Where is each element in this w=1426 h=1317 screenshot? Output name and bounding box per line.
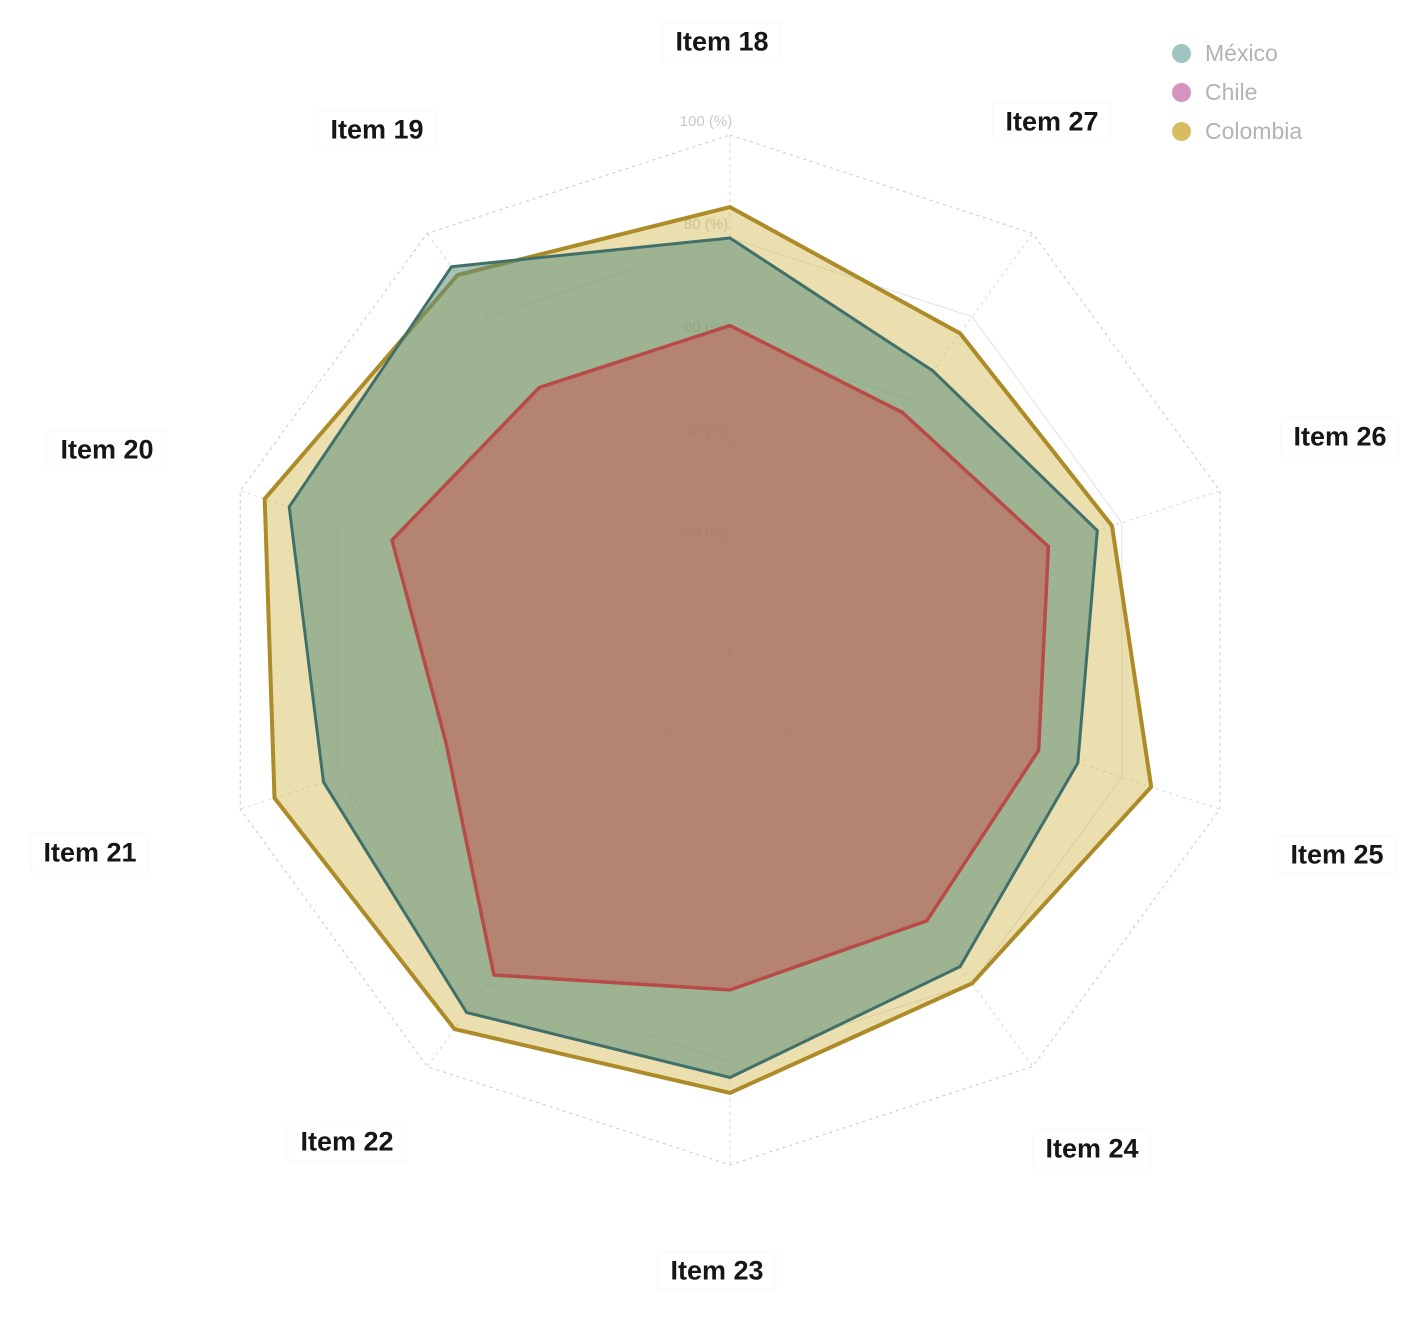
axis-label-item22: Item 22 [287, 1123, 406, 1162]
axis-label-item20: Item 20 [47, 431, 166, 470]
legend-item-mexico[interactable]: México [1172, 40, 1302, 67]
legend-swatch-mexico-icon [1172, 44, 1191, 63]
radial-tick-label: 100 (%) [680, 113, 733, 130]
legend-item-colombia[interactable]: Colombia [1172, 118, 1302, 145]
legend-label-chile: Chile [1205, 79, 1257, 106]
axis-label-item24: Item 24 [1032, 1130, 1151, 1169]
axis-label-item23: Item 23 [657, 1252, 776, 1291]
legend-swatch-chile-icon [1172, 83, 1191, 102]
radar-chart[interactable]: 20 (%)40 (%)60 (%)80 (%)100 (%) [0, 0, 1426, 1317]
legend-label-mexico: México [1205, 40, 1278, 67]
legend-swatch-colombia-icon [1172, 122, 1191, 141]
axis-label-item27: Item 27 [992, 103, 1111, 142]
axis-label-item19: Item 19 [317, 111, 436, 150]
axis-label-item18: Item 18 [662, 23, 781, 62]
axis-label-item25: Item 25 [1277, 836, 1396, 875]
axis-label-item21: Item 21 [30, 834, 149, 873]
axis-label-item26: Item 26 [1280, 418, 1399, 457]
radar-chart-stage: 20 (%)40 (%)60 (%)80 (%)100 (%) Item 18 … [0, 0, 1426, 1317]
legend-label-colombia: Colombia [1205, 118, 1302, 145]
legend-item-chile[interactable]: Chile [1172, 79, 1302, 106]
legend: México Chile Colombia [1172, 40, 1302, 145]
